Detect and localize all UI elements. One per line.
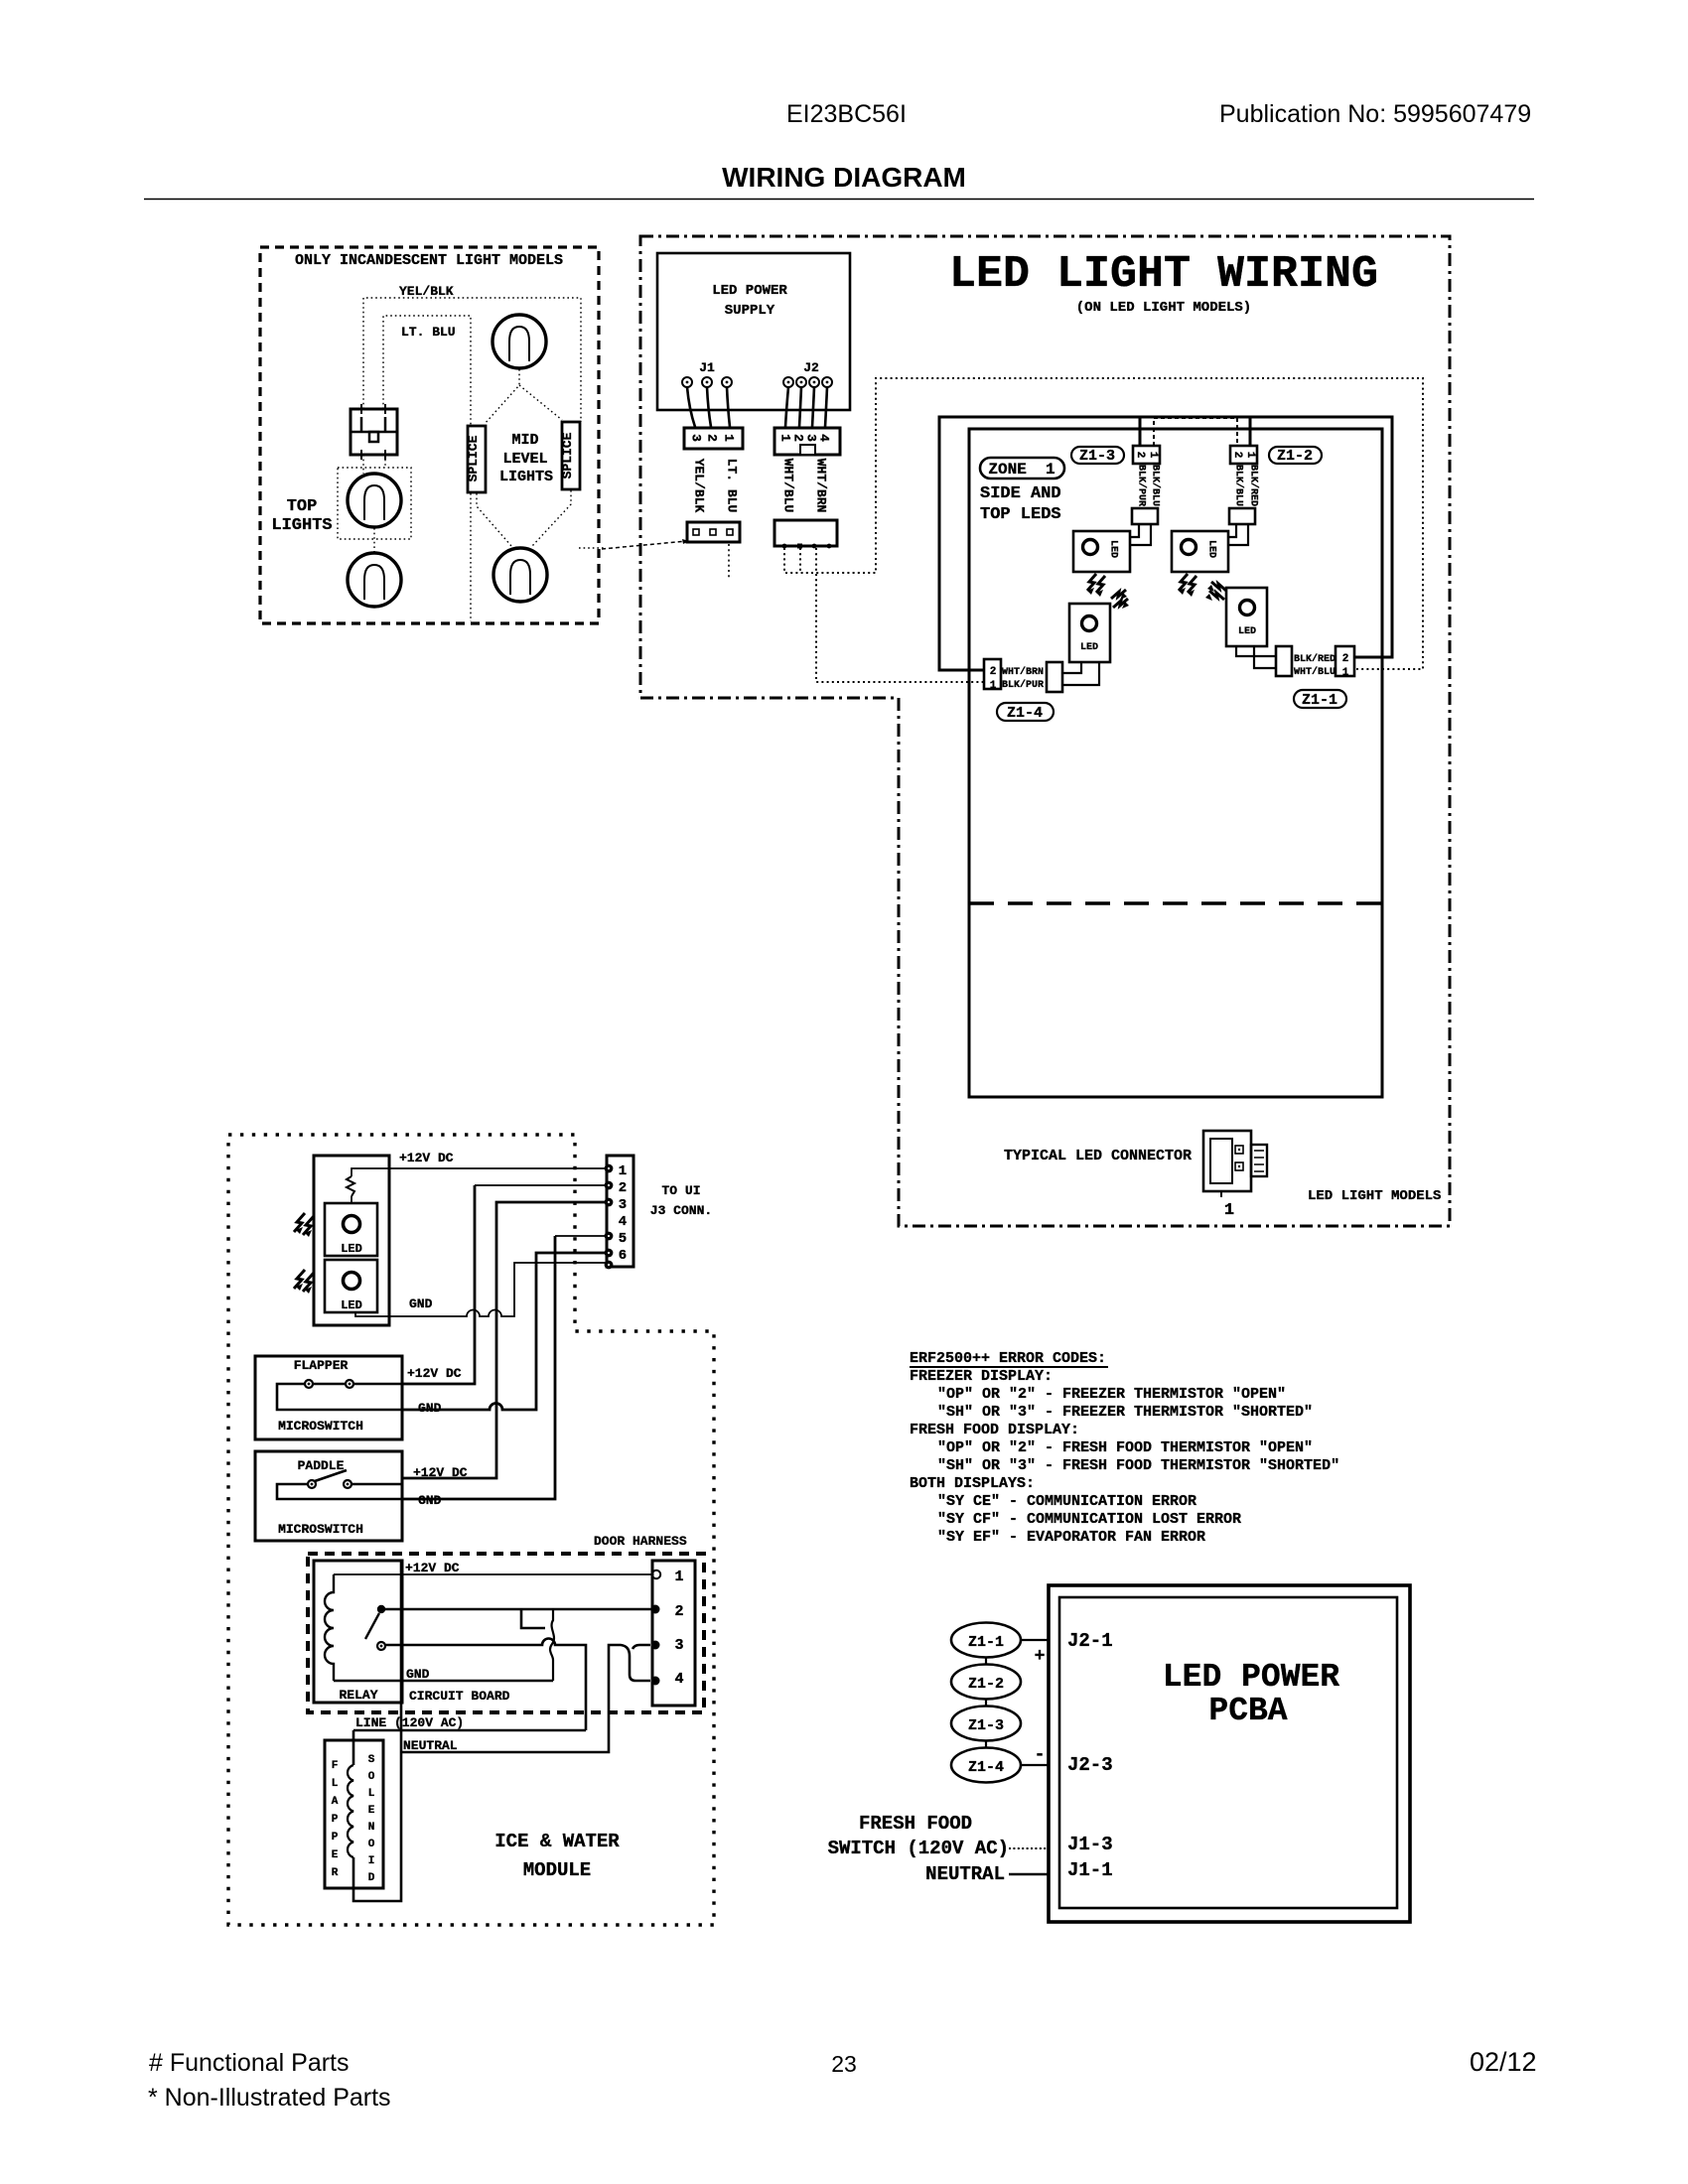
svg-text:02/12: 02/12	[1470, 2047, 1537, 2077]
svg-text:FRESH FOOD DISPLAY:: FRESH FOOD DISPLAY:	[910, 1422, 1079, 1438]
svg-text:2: 2	[791, 434, 806, 442]
svg-text:LEVEL: LEVEL	[502, 451, 547, 468]
svg-text:1: 1	[674, 1569, 683, 1585]
svg-text:2: 2	[1134, 452, 1146, 459]
svg-text:E: E	[368, 1805, 375, 1817]
svg-text:ONLY INCANDESCENT LIGHT MODELS: ONLY INCANDESCENT LIGHT MODELS	[295, 252, 563, 269]
svg-text:4: 4	[674, 1671, 683, 1688]
svg-text:"SH" OR "3" - FREEZER THERMIST: "SH" OR "3" - FREEZER THERMISTOR "SHORTE…	[937, 1404, 1313, 1421]
svg-text:J2-1: J2-1	[1067, 1630, 1113, 1652]
svg-text:-: -	[1035, 1745, 1046, 1765]
svg-text:1: 1	[722, 434, 737, 442]
svg-text:ICE & WATER: ICE & WATER	[494, 1831, 620, 1852]
svg-text:GND: GND	[409, 1297, 433, 1311]
svg-text:Z1-1: Z1-1	[968, 1634, 1004, 1651]
svg-text:D: D	[368, 1872, 375, 1884]
svg-text:SUPPLY: SUPPLY	[725, 303, 775, 319]
svg-text:3: 3	[689, 434, 704, 442]
svg-text:"OP" OR "2" - FREEZER THERMIST: "OP" OR "2" - FREEZER THERMISTOR "OPEN"	[937, 1386, 1286, 1403]
svg-text:LINE (120V AC): LINE (120V AC)	[355, 1715, 464, 1730]
svg-text:FRESH FOOD: FRESH FOOD	[859, 1813, 972, 1835]
svg-text:Z1-4: Z1-4	[1007, 705, 1043, 722]
svg-text:1: 1	[1224, 1201, 1234, 1220]
svg-text:L: L	[332, 1778, 339, 1790]
svg-text:"SY CE" - COMMUNICATION ERROR: "SY CE" - COMMUNICATION ERROR	[937, 1493, 1196, 1510]
svg-text:A: A	[332, 1796, 339, 1808]
svg-text:LED LIGHT WIRING: LED LIGHT WIRING	[949, 249, 1378, 300]
svg-text:J1: J1	[699, 360, 715, 375]
svg-text:WHT/BLU: WHT/BLU	[781, 459, 796, 513]
svg-text:MID: MID	[511, 432, 538, 449]
svg-text:3: 3	[804, 434, 819, 442]
svg-text:6: 6	[619, 1248, 627, 1264]
svg-text:3: 3	[619, 1197, 627, 1213]
svg-text:4: 4	[619, 1214, 627, 1230]
svg-text:TOP: TOP	[287, 497, 318, 516]
svg-text:WIRING DIAGRAM: WIRING DIAGRAM	[722, 162, 966, 193]
svg-text:WHT/BRN: WHT/BRN	[814, 459, 829, 513]
svg-text:P: P	[332, 1814, 339, 1826]
svg-text:PADDLE: PADDLE	[298, 1458, 345, 1473]
svg-text:SIDE AND: SIDE AND	[980, 484, 1061, 503]
svg-text:SPLICE: SPLICE	[466, 435, 481, 481]
svg-text:L: L	[368, 1788, 375, 1800]
svg-text:LED: LED	[1238, 626, 1256, 637]
svg-text:1: 1	[990, 680, 997, 692]
svg-text:"OP" OR "2" - FRESH FOOD THERM: "OP" OR "2" - FRESH FOOD THERMISTOR "OPE…	[937, 1439, 1313, 1456]
svg-text:23: 23	[831, 2051, 857, 2077]
svg-text:TOP LEDS: TOP LEDS	[980, 505, 1061, 524]
svg-text:CIRCUIT BOARD: CIRCUIT BOARD	[409, 1689, 510, 1704]
svg-text:MICROSWITCH: MICROSWITCH	[278, 1419, 363, 1433]
svg-text:2: 2	[619, 1180, 627, 1196]
svg-text:SWITCH (120V AC): SWITCH (120V AC)	[828, 1838, 1009, 1859]
svg-text:2: 2	[1342, 653, 1349, 665]
svg-text:YEL/BLK: YEL/BLK	[692, 459, 707, 513]
svg-text:"SY EF" - EVAPORATOR FAN ERROR: "SY EF" - EVAPORATOR FAN ERROR	[937, 1529, 1205, 1546]
svg-text:1: 1	[1342, 667, 1349, 679]
svg-text:GND: GND	[418, 1401, 442, 1416]
svg-text:FREEZER DISPLAY:: FREEZER DISPLAY:	[910, 1368, 1053, 1385]
svg-text:BLK/PUR: BLK/PUR	[1136, 465, 1148, 506]
svg-text:BLK/RED: BLK/RED	[1248, 465, 1260, 506]
svg-text:ZONE 1: ZONE 1	[988, 461, 1055, 478]
svg-text:PCBA: PCBA	[1208, 1693, 1287, 1729]
svg-text:BLK/BLU: BLK/BLU	[1150, 465, 1162, 506]
svg-text:Z1-3: Z1-3	[968, 1717, 1004, 1734]
svg-text:J2-3: J2-3	[1067, 1754, 1113, 1776]
svg-text:WHT/BRN: WHT/BRN	[1002, 666, 1044, 678]
svg-text:RELAY: RELAY	[339, 1688, 377, 1703]
svg-text:+12V DC: +12V DC	[399, 1151, 454, 1165]
svg-text:MICROSWITCH: MICROSWITCH	[278, 1522, 363, 1537]
svg-text:LED: LED	[341, 1298, 362, 1312]
svg-text:"SH" OR "3" - FRESH FOOD THERM: "SH" OR "3" - FRESH FOOD THERMISTOR "SHO…	[937, 1457, 1339, 1474]
svg-text:1: 1	[619, 1163, 627, 1179]
svg-text:WHT/BLU: WHT/BLU	[1294, 666, 1336, 678]
svg-text:2: 2	[1231, 452, 1243, 459]
svg-text:F: F	[332, 1760, 339, 1772]
svg-text:BOTH DISPLAYS:: BOTH DISPLAYS:	[910, 1475, 1035, 1492]
svg-text:TYPICAL LED CONNECTOR: TYPICAL LED CONNECTOR	[1004, 1148, 1192, 1164]
svg-text:O: O	[368, 1839, 375, 1850]
svg-text:J1-1: J1-1	[1067, 1859, 1113, 1881]
svg-text:R: R	[332, 1867, 339, 1879]
svg-text:I: I	[368, 1855, 375, 1867]
svg-text:3: 3	[674, 1637, 683, 1654]
svg-text:(ON LED LIGHT MODELS): (ON LED LIGHT MODELS)	[1076, 300, 1251, 316]
svg-text:# Functional Parts: # Functional Parts	[149, 2049, 350, 2077]
svg-text:LIGHTS: LIGHTS	[271, 516, 332, 535]
svg-text:EI23BC56I: EI23BC56I	[786, 100, 907, 128]
svg-text:LED: LED	[1206, 540, 1217, 558]
svg-text:E: E	[332, 1849, 339, 1861]
svg-text:* Non-Illustrated Parts: * Non-Illustrated Parts	[148, 2084, 391, 2112]
svg-text:FLAPPER: FLAPPER	[294, 1358, 349, 1373]
svg-text:LED: LED	[1108, 540, 1119, 558]
svg-text:O: O	[368, 1771, 375, 1783]
svg-text:P: P	[332, 1832, 339, 1843]
svg-text:2: 2	[705, 434, 720, 442]
svg-text:ERF2500++ ERROR CODES:: ERF2500++ ERROR CODES:	[910, 1350, 1106, 1367]
svg-text:LED POWER: LED POWER	[712, 283, 787, 299]
svg-text:BLK/PUR: BLK/PUR	[1002, 679, 1044, 691]
svg-text:Publication No: 5995607479: Publication No: 5995607479	[1219, 100, 1531, 128]
svg-text:4: 4	[817, 434, 832, 442]
svg-text:J2: J2	[803, 360, 819, 375]
svg-text:S: S	[368, 1754, 375, 1766]
svg-text:+: +	[1035, 1647, 1046, 1667]
svg-text:TO UI: TO UI	[661, 1183, 700, 1198]
svg-text:N: N	[368, 1822, 375, 1834]
svg-text:"SY CF" - COMMUNICATION LOST E: "SY CF" - COMMUNICATION LOST ERROR	[937, 1511, 1241, 1528]
svg-text:LT. BLU: LT. BLU	[401, 325, 456, 340]
svg-text:Z1-4: Z1-4	[968, 1759, 1004, 1776]
svg-text:NEUTRAL: NEUTRAL	[925, 1863, 1005, 1885]
svg-text:GND: GND	[418, 1493, 442, 1508]
svg-text:+12V DC: +12V DC	[413, 1465, 468, 1480]
svg-text:1: 1	[778, 434, 793, 442]
svg-text:LED POWER: LED POWER	[1163, 1659, 1339, 1696]
svg-text:+12V DC: +12V DC	[407, 1366, 462, 1381]
svg-text:BLK/RED: BLK/RED	[1294, 653, 1336, 665]
svg-text:DOOR HARNESS: DOOR HARNESS	[594, 1534, 687, 1549]
svg-text:+12V DC: +12V DC	[405, 1561, 460, 1575]
svg-text:YEL/BLK: YEL/BLK	[399, 284, 454, 299]
svg-text:Z1-3: Z1-3	[1079, 448, 1115, 465]
svg-text:Z1-1: Z1-1	[1302, 692, 1337, 709]
svg-text:2: 2	[674, 1603, 683, 1620]
svg-text:LED: LED	[341, 1242, 362, 1256]
svg-text:5: 5	[619, 1231, 627, 1247]
svg-text:LIGHTS: LIGHTS	[499, 469, 553, 485]
svg-text:J3 CONN.: J3 CONN.	[650, 1203, 712, 1218]
svg-text:LT. BLU: LT. BLU	[725, 459, 740, 513]
svg-text:LED LIGHT MODELS: LED LIGHT MODELS	[1308, 1188, 1441, 1204]
svg-text:Z1-2: Z1-2	[1277, 448, 1313, 465]
svg-text:LED: LED	[1080, 642, 1098, 653]
svg-text:SPLICE: SPLICE	[560, 432, 575, 478]
svg-text:Z1-2: Z1-2	[968, 1676, 1004, 1693]
svg-text:1: 1	[1147, 452, 1159, 459]
svg-text:J1-3: J1-3	[1067, 1834, 1113, 1855]
svg-text:1: 1	[1244, 452, 1256, 459]
svg-text:2: 2	[990, 666, 997, 678]
svg-text:MODULE: MODULE	[523, 1859, 591, 1881]
svg-text:BLK/BLU: BLK/BLU	[1233, 465, 1245, 506]
